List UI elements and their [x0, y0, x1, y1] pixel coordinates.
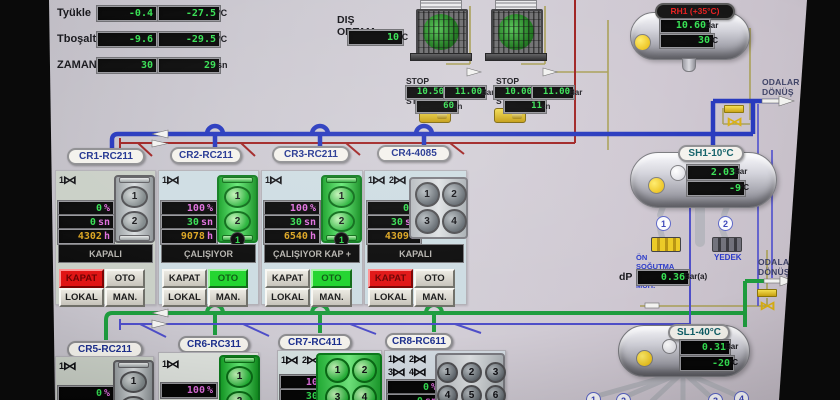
status-text: ÇALIŞIYOR — [161, 244, 256, 263]
lokal-button[interactable]: LOKAL — [162, 288, 207, 307]
cr6-label: CR6-RC311 — [178, 336, 250, 353]
stop-setpoint: 10.50 — [406, 86, 448, 99]
cylinder-2: 2 — [328, 211, 355, 233]
sl1-label: SL1-40°C — [668, 324, 730, 341]
unit-label: Bar — [481, 88, 494, 97]
cylinder-2: 2 — [461, 362, 482, 383]
row-label: ZAMAN — [57, 59, 97, 71]
tbosalt-value-1: -9.6 — [97, 32, 157, 47]
cage-bars — [493, 11, 541, 55]
comp-cap — [222, 177, 254, 183]
cr7-panel: 1 2 100% 30sn 1 2 3 4 — [277, 350, 382, 400]
valve-actuator — [757, 289, 777, 297]
comp-cap — [119, 177, 151, 183]
control-valve-icon — [725, 118, 743, 128]
cr7-label: CR7-RC411 — [278, 334, 352, 351]
man-button[interactable]: MAN. — [311, 288, 352, 307]
kapat-button[interactable]: KAPAT — [265, 269, 310, 288]
compressor-icon: 1 2 — [114, 175, 155, 243]
fan-cage — [416, 9, 468, 57]
stop-setpoint: 10.00 — [494, 86, 536, 99]
pump2-number: 2 — [718, 216, 733, 231]
suction-valve-icon: 1 — [281, 354, 298, 366]
rh1-pressure: 10.60 — [660, 19, 710, 33]
dp-label: dP — [619, 271, 632, 283]
suction-valve-icon: 2 — [389, 174, 406, 186]
control-valve-1 — [722, 105, 746, 131]
status-text: KAPALI — [58, 244, 153, 263]
cr3-label: CR3-RC211 — [272, 146, 350, 163]
compressor-icon: 1 2 — [113, 360, 154, 400]
lokal-button[interactable]: LOKAL — [59, 288, 104, 307]
cylinder-4: 4 — [437, 385, 458, 400]
rh1-label: RH1 (+35°C) — [655, 3, 735, 20]
hours-display: 4302h — [58, 229, 114, 244]
compressor-icon: 1 2 3 4 — [409, 177, 468, 239]
cr1-panel: 1 0% 0sn 4302h 1 2 KAPALI KAPAT OTO LOKA… — [55, 170, 156, 305]
cylinder-1: 1 — [226, 366, 253, 388]
sh1-indicator-light — [648, 177, 665, 194]
cage-bars — [418, 11, 466, 55]
hours-display: 6540h — [264, 229, 320, 244]
cylinder-3: 3 — [485, 362, 506, 383]
suction-valve-icon: 1 — [162, 174, 179, 186]
condenser-unit-2 — [0, 0, 52, 63]
cylinder-1: 1 — [325, 358, 350, 383]
pump-2-icon — [712, 237, 742, 252]
sh1-temp: -9 — [687, 181, 745, 196]
unit-label: sn — [217, 60, 228, 70]
dp-display: 0.36 — [637, 270, 689, 285]
suction-valve-icon: 1 — [388, 353, 405, 365]
start-setpoint: 11.00 — [444, 86, 486, 99]
cr2-label: CR2-RC211 — [170, 147, 242, 164]
fan-cage — [491, 9, 543, 57]
row-label: Tboşalt — [57, 33, 96, 45]
unit-label: Bar — [569, 88, 582, 97]
cylinder-1: 1 — [415, 182, 440, 207]
outlet-4: 4 — [734, 391, 749, 400]
suction-valve-icon: 1 — [59, 174, 76, 186]
timer-display: 0sn — [58, 215, 114, 230]
unit-label: Bar — [725, 342, 738, 351]
unit-label: °C — [740, 183, 749, 192]
timer-display: 30sn — [264, 215, 320, 230]
monitor-photo: Tyükle -0.4 -27.5 °C Tboşalt -9.6 -29.5 … — [0, 0, 840, 400]
cylinder-2: 2 — [226, 391, 253, 400]
comp-cap — [118, 362, 150, 368]
man-button[interactable]: MAN. — [105, 288, 145, 307]
lokal-button[interactable]: LOKAL — [265, 288, 310, 307]
sh1-pressure: 2.03 — [687, 165, 739, 180]
tyukle-value-1: -0.4 — [97, 6, 157, 21]
cylinder-1: 1 — [120, 371, 147, 393]
cr4-label: CR4-4085 — [377, 145, 451, 162]
unit-label: °C — [217, 8, 227, 18]
suction-valve-icon: 2 — [409, 353, 426, 365]
cylinder-2: 2 — [224, 211, 251, 233]
unit-label: °C — [709, 36, 718, 45]
man-button[interactable]: MAN. — [208, 288, 248, 307]
scada-screen: Tyükle -0.4 -27.5 °C Tboşalt -9.6 -29.5 … — [0, 0, 840, 400]
suction-valve-icon: 1 — [162, 358, 179, 370]
timer-display: 60 — [416, 100, 458, 113]
oto-button[interactable]: OTO — [208, 269, 248, 288]
status-text: KAPALI — [367, 244, 464, 263]
sh1-label: SH1-10°C — [678, 145, 744, 162]
unit-label: °C — [398, 32, 408, 42]
cylinder-1: 1 — [437, 362, 458, 383]
pump-1-icon — [651, 237, 681, 252]
outside-temp-display: 10 — [348, 30, 403, 45]
base — [485, 53, 547, 61]
cr4-panel: 1 2 0% 30sn 4309h 1 2 3 4 KAPALI KAPAT O… — [364, 170, 467, 305]
comp-cap — [224, 357, 256, 363]
odalar-donus-label-1: ODALARDÖNÜŞ — [762, 78, 800, 98]
suction-valve-icon: 1 — [59, 360, 76, 372]
compressor-icon: 1 2 3 4 5 6 — [435, 353, 505, 400]
outlet-1: 1 — [586, 392, 601, 400]
oto-button[interactable]: OTO — [311, 269, 352, 288]
cylinder-3: 3 — [325, 385, 350, 400]
rh1-temp: 30 — [660, 34, 714, 48]
yedek-label: YEDEK — [714, 253, 742, 263]
oto-button[interactable]: OTO — [414, 269, 455, 288]
tyukle-value-2: -27.5 — [158, 6, 220, 21]
cr8-label: CR8-RC611 — [385, 333, 453, 350]
valve-actuator — [724, 105, 744, 113]
comp-cap — [326, 177, 358, 183]
zaman-value-1: 30 — [97, 58, 157, 73]
timer-display: 0sn — [387, 394, 441, 400]
odalar-donus-label-2: ODALARDÖNÜŞ — [758, 258, 796, 278]
unit-label: sn — [453, 102, 462, 111]
control-valve-2 — [755, 289, 779, 315]
cylinder-4: 4 — [442, 209, 467, 234]
suction-valve-icon: 4 — [409, 366, 426, 378]
oto-button[interactable]: OTO — [105, 269, 145, 288]
cylinder-4: 4 — [352, 385, 377, 400]
pump1-number: 1 — [656, 216, 671, 231]
cylinder-2: 2 — [352, 358, 377, 383]
kapat-button[interactable]: KAPAT — [162, 269, 207, 288]
kapat-button[interactable]: KAPAT — [368, 269, 413, 288]
kapat-button[interactable]: KAPAT — [59, 269, 104, 288]
suction-valve-icon: 1 — [368, 174, 385, 186]
base — [410, 53, 472, 61]
unit-label: Bar — [734, 167, 747, 176]
sl1-indicator-light — [636, 350, 653, 367]
cylinder-5: 5 — [461, 385, 482, 400]
sl1-level-indicator — [662, 339, 677, 354]
rh1-indicator-light — [634, 34, 651, 51]
sh1-level-indicator — [670, 165, 686, 181]
lokal-button[interactable]: LOKAL — [368, 288, 413, 307]
suction-valve-icon: 3 — [388, 366, 405, 378]
cr5-panel: 1 0% 1 2 — [55, 356, 154, 400]
capacity-display: 0% — [58, 386, 114, 400]
unit-label: °C — [217, 34, 227, 44]
hours-display: 9078h — [161, 229, 217, 244]
unit-label: Bar(a) — [684, 272, 707, 281]
capacity-display: 100% — [264, 201, 320, 216]
timer-display: 30sn — [161, 215, 217, 230]
timer-display: 11 — [504, 100, 546, 113]
cylinder-1: 1 — [224, 186, 251, 208]
unit-label: sn — [541, 102, 550, 111]
cylinder-2: 2 — [120, 396, 147, 400]
sl1-temp: -20 — [680, 356, 734, 371]
sl1-pressure: 0.31 — [680, 340, 730, 355]
capacity-display: 100% — [161, 201, 217, 216]
row-label: Tyükle — [57, 7, 91, 19]
capacity-display: 0% — [387, 380, 441, 395]
cylinder-1: 1 — [328, 186, 355, 208]
status-text: ÇALIŞIYOR KAP + — [264, 244, 360, 263]
start-setpoint: 11.00 — [532, 86, 574, 99]
cr8-panel: 1 2 3 4 0% 0sn 1 2 3 4 5 6 — [384, 350, 506, 400]
cr3-panel: 1 100% 30sn 6540h 1 2 1 ÇALIŞIYOR KAP + … — [261, 170, 363, 305]
man-button[interactable]: MAN. — [414, 288, 455, 307]
cr1-label: CR1-RC211 — [67, 148, 145, 165]
cr2-panel: 1 100% 30sn 9078h 1 2 1 ÇALIŞIYOR KAPAT … — [158, 170, 259, 305]
control-valve-icon — [758, 302, 776, 312]
unit-label: °C — [729, 358, 738, 367]
tbosalt-value-2: -29.5 — [158, 32, 220, 47]
condenser-unit-1 — [0, 0, 52, 63]
comp-cap — [119, 235, 151, 241]
capacity-display: 0% — [58, 201, 114, 216]
zaman-value-2: 29 — [158, 58, 220, 73]
cylinder-2: 2 — [121, 211, 148, 233]
cylinder-2: 2 — [442, 182, 467, 207]
cylinder-3: 3 — [415, 209, 440, 234]
cr6-panel: 1 100% 1 2 — [158, 352, 259, 400]
suction-valve-icon: 1 — [265, 174, 282, 186]
cylinder-6: 6 — [485, 385, 506, 400]
compressor-icon: 1 2 — [219, 355, 260, 400]
compressor-icon: 1 2 3 4 — [316, 353, 382, 400]
rh1-nozzle — [682, 58, 696, 72]
cylinder-1: 1 — [121, 186, 148, 208]
unit-label: Bar — [705, 21, 718, 30]
capacity-display: 100% — [161, 383, 217, 398]
